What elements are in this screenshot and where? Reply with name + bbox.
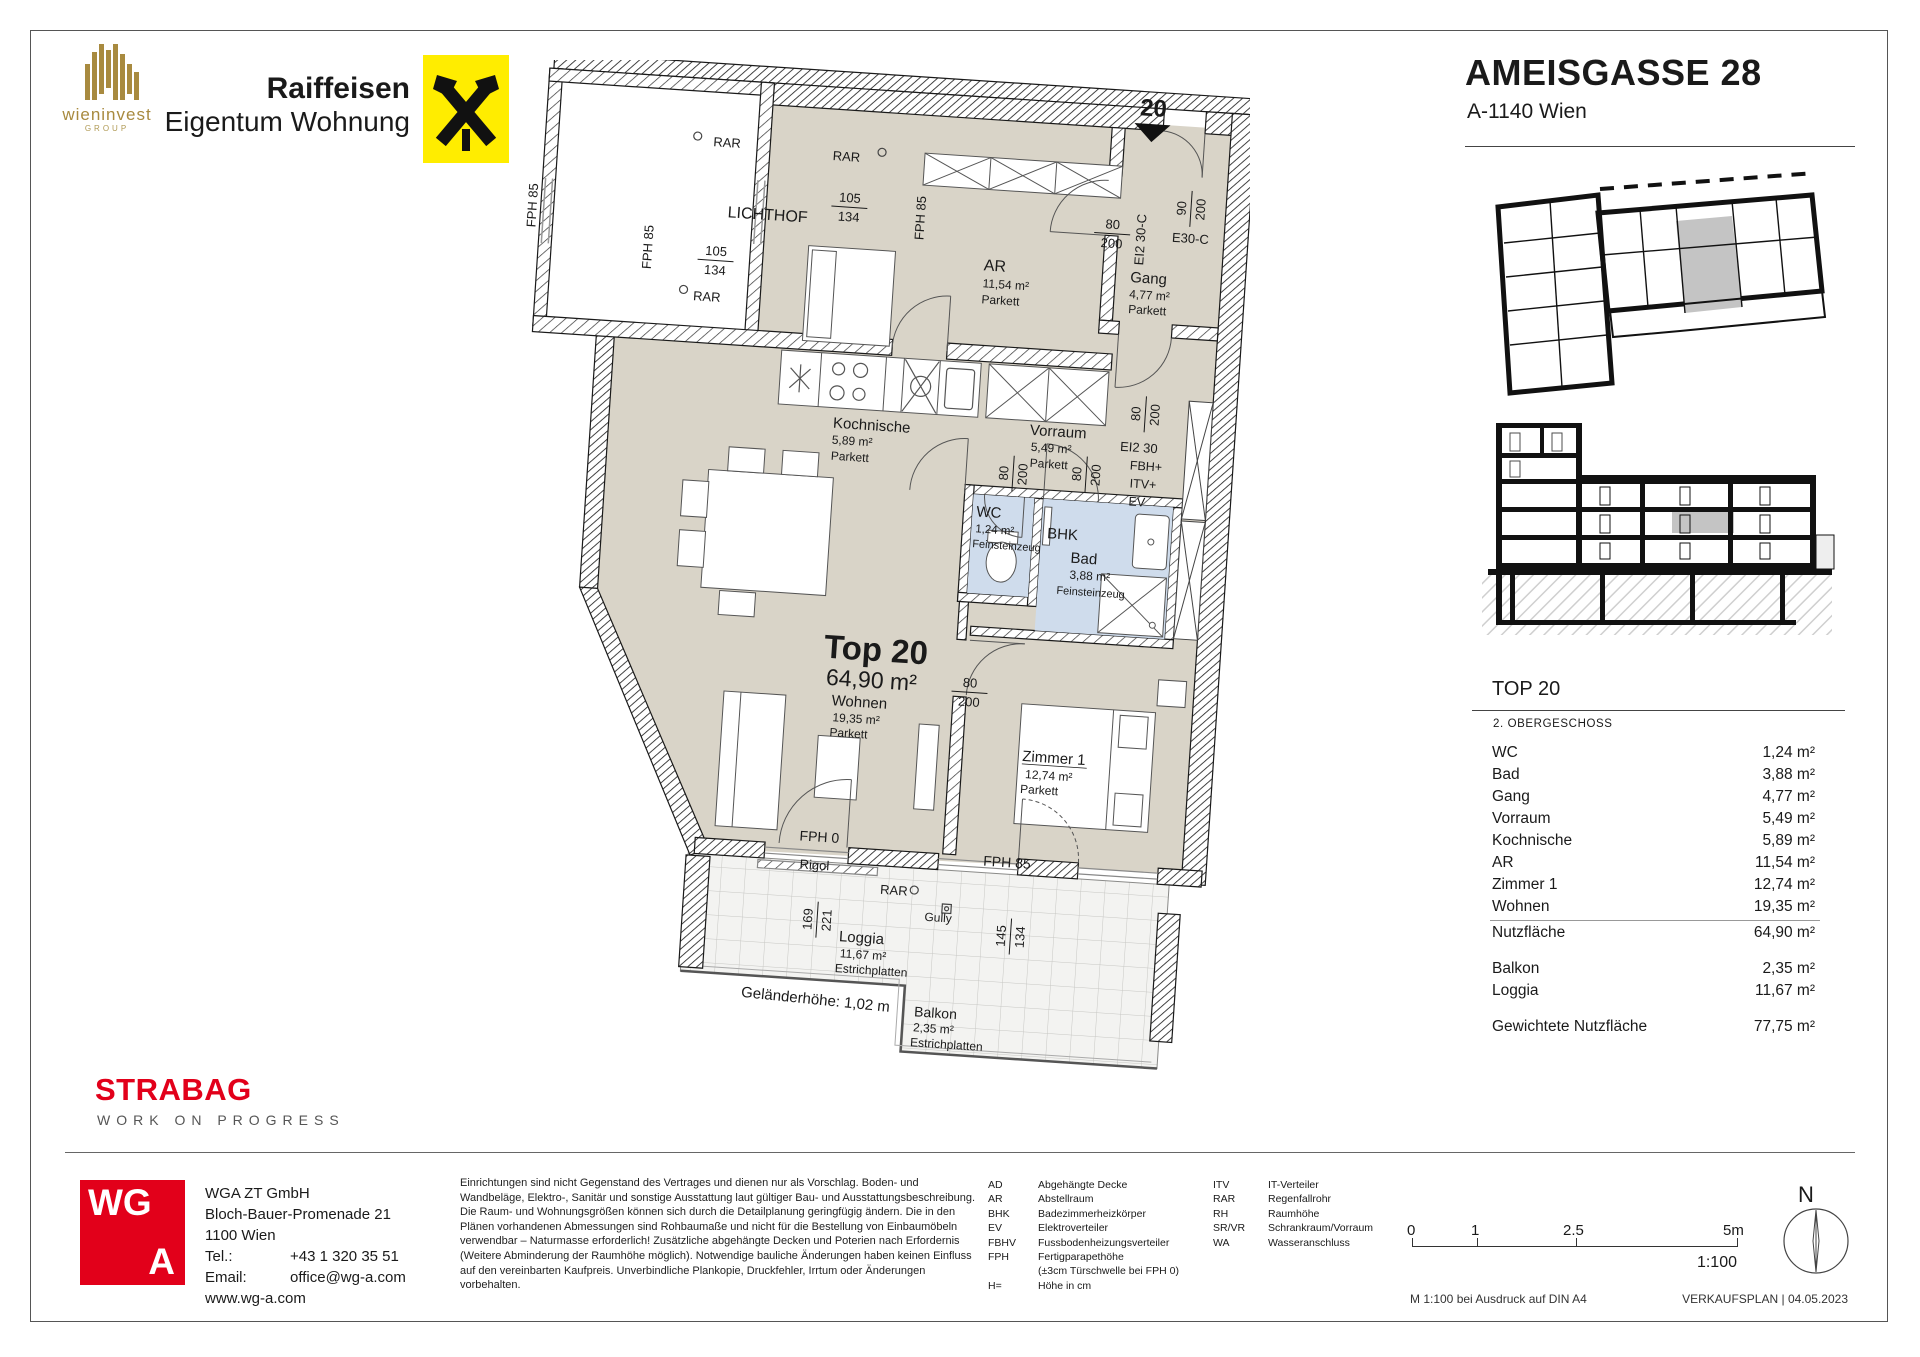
room-floor: Parkett: [1020, 782, 1060, 799]
svg-text:200: 200: [1192, 198, 1208, 221]
table-row: Wohnen19,35 m²: [1492, 898, 1845, 920]
itv-label: ITV+: [1129, 476, 1157, 492]
svg-text:80: 80: [996, 465, 1012, 480]
contact-city: 1100 Wien: [205, 1225, 406, 1246]
north-label: N: [1798, 1182, 1814, 1208]
svg-text:90: 90: [1174, 201, 1190, 216]
door-type-label: EI2 30: [1120, 439, 1159, 456]
room-name: Bad: [1070, 550, 1098, 569]
north-arrow-icon: [1782, 1206, 1852, 1276]
contact-web: www.wg-a.com: [205, 1288, 406, 1309]
door-type-label: E30-C: [1172, 230, 1210, 247]
rar-label: RAR: [693, 288, 721, 305]
contact-email: Email:office@wg-a.com: [205, 1267, 406, 1288]
document-type-date: VERKAUFSPLAN | 04.05.2023: [1640, 1292, 1848, 1306]
scale-ratio: 1:100: [1697, 1254, 1737, 1272]
svg-text:134: 134: [837, 209, 860, 225]
rar-label: RAR: [713, 134, 741, 151]
svg-text:80: 80: [1069, 466, 1085, 481]
footer-divider: [65, 1152, 1855, 1153]
room-name: Balkon: [914, 1003, 958, 1022]
contact-street: Bloch-Bauer-Promenade 21: [205, 1204, 406, 1225]
strabag-logo: STRABAG: [95, 1072, 252, 1108]
table-row-weighted: Gewichtete Nutzfläche77,75 m²: [1492, 1018, 1845, 1040]
fph85-label: FPH 85: [911, 195, 929, 240]
ev-label: EV: [1128, 494, 1146, 509]
bhk-label: BHK: [1047, 525, 1079, 544]
room-floor: Parkett: [1029, 456, 1069, 473]
room-name: Gang: [1130, 269, 1168, 288]
fph0-label: FPH 0: [799, 827, 840, 846]
svg-text:169: 169: [799, 908, 815, 931]
gully-label: Gully: [924, 910, 952, 926]
room-floor: Parkett: [829, 725, 869, 742]
contact-block: WGA ZT GmbH Bloch-Bauer-Promenade 21 110…: [205, 1183, 406, 1309]
table-row-total: Nutzfläche64,90 m²: [1492, 924, 1845, 946]
table-row: Loggia11,67 m²: [1492, 982, 1845, 1004]
room-area: 4,77 m²: [1129, 287, 1171, 304]
fbh-label: FBH+: [1129, 458, 1162, 474]
table-row: Vorraum5,49 m²: [1492, 810, 1845, 832]
room-name: AR: [983, 257, 1006, 275]
svg-text:200: 200: [1087, 464, 1103, 487]
contact-phone: Tel.:+43 1 320 35 51: [205, 1246, 406, 1267]
svg-text:134: 134: [1012, 926, 1028, 949]
fph85-label: FPH 85: [639, 224, 657, 269]
disclaimer-text: Einrichtungen sind nicht Gegenstand des …: [460, 1176, 980, 1293]
svg-text:134: 134: [704, 262, 727, 278]
svg-text:80: 80: [1128, 406, 1144, 421]
svg-text:200: 200: [1014, 463, 1030, 486]
page-subtitle: A-1140 Wien: [1467, 100, 1587, 124]
page-title: AMEISGASSE 28: [1465, 52, 1762, 94]
contact-company: WGA ZT GmbH: [205, 1183, 406, 1204]
panel-floor-label: 2. OBERGESCHOSS: [1493, 718, 1613, 730]
floor-plan: RAR RAR RAR LICHTHOF 105 134 105 134 FPH…: [480, 60, 1250, 1090]
wga-logo: WG A: [80, 1180, 185, 1285]
svg-text:200: 200: [1147, 404, 1163, 427]
unit-number-marker: 20: [1139, 94, 1167, 123]
panel-divider: [1472, 710, 1845, 711]
fph85-label: FPH 85: [983, 853, 1032, 872]
wieninvest-name: wieninvest: [62, 105, 151, 124]
rar-label: RAR: [880, 882, 908, 899]
table-row: Balkon2,35 m²: [1492, 960, 1845, 982]
raiffeisen-wordmark: Raiffeisen: [150, 72, 410, 106]
room-floor: Parkett: [1128, 302, 1168, 319]
panel-unit-title: TOP 20: [1492, 678, 1560, 701]
svg-text:105: 105: [705, 243, 728, 259]
room-name: Loggia: [838, 928, 885, 948]
room-area: 2,35 m²: [913, 1020, 955, 1037]
abbreviation-legend-col1: ADAbgehängte Decke ARAbstellraum BHKBade…: [988, 1178, 1179, 1293]
table-row: Kochnische5,89 m²: [1492, 832, 1845, 854]
table-row: WC1,24 m²: [1492, 744, 1845, 766]
strabag-claim: WORK ON PROGRESS: [97, 1112, 345, 1128]
svg-text:105: 105: [839, 190, 862, 206]
fph85-label: FPH 85: [523, 183, 541, 228]
svg-text:145: 145: [993, 925, 1009, 948]
room-area: 5,49 m²: [1030, 440, 1072, 457]
building-section: [1480, 415, 1840, 660]
svg-text:221: 221: [818, 909, 834, 932]
svg-text:200: 200: [958, 694, 981, 710]
title-divider: [1465, 146, 1855, 147]
rigol-label: Rigol: [799, 856, 830, 873]
svg-text:80: 80: [962, 675, 977, 691]
room-area: 3,88 m²: [1069, 568, 1111, 585]
svg-text:80: 80: [1105, 216, 1120, 232]
table-row: Gang4,77 m²: [1492, 788, 1845, 810]
print-scale-note: M 1:100 bei Ausdruck auf DIN A4: [1410, 1292, 1587, 1306]
svg-text:200: 200: [1100, 235, 1123, 251]
room-floor: Parkett: [981, 292, 1021, 309]
room-name: WC: [976, 503, 1002, 522]
table-row: Bad3,88 m²: [1492, 766, 1845, 788]
plan-sheet: wieninvest GROUP Raiffeisen Eigentum Woh…: [0, 0, 1920, 1357]
wieninvest-logo-icon: [55, 42, 160, 104]
room-floor: Parkett: [830, 449, 870, 466]
table-row: AR11,54 m²: [1492, 854, 1845, 876]
abbreviation-legend-col2: ITVIT-Verteiler RARRegenfallrohr RHRaumh…: [1213, 1178, 1373, 1250]
room-area: 5,89 m²: [831, 433, 873, 450]
railing-height-label: Geländerhöhe: 1,02 m: [740, 984, 890, 1016]
key-plan: [1480, 165, 1840, 405]
table-subtotal-line: [1490, 920, 1820, 921]
rar-label: RAR: [832, 148, 860, 165]
table-row: Zimmer 112,74 m²: [1492, 876, 1845, 898]
raiffeisen-subline: Eigentum Wohnung: [140, 106, 410, 138]
